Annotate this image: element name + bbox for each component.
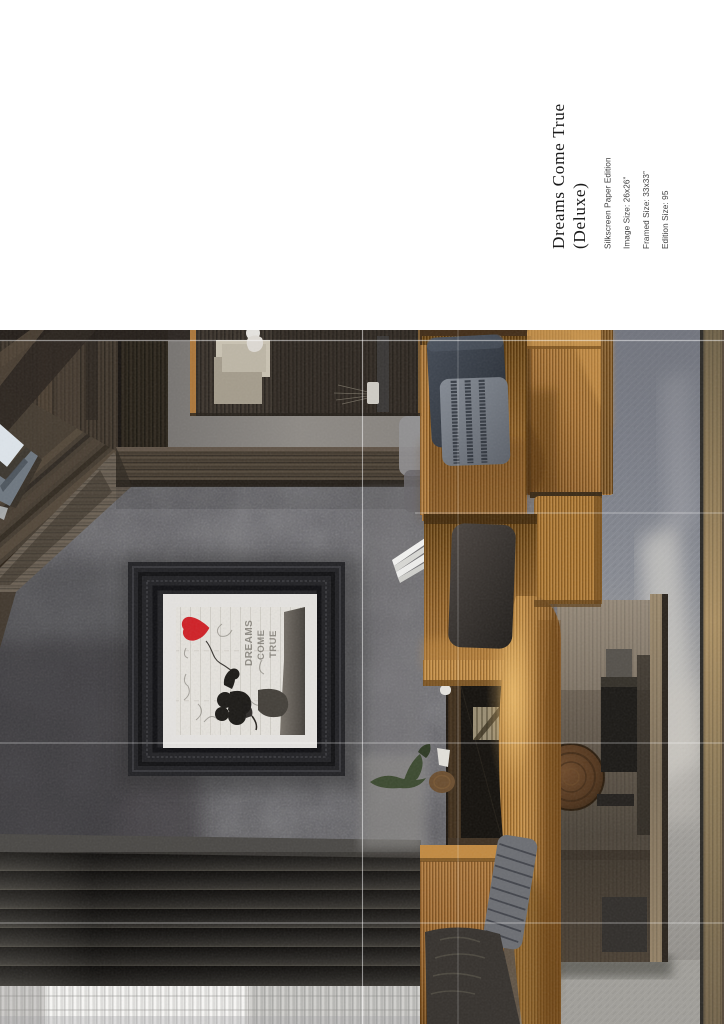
svg-text:Dreams Come True: Dreams Come True xyxy=(549,103,568,249)
svg-text:Framed Size: 33x33”: Framed Size: 33x33” xyxy=(642,171,651,249)
svg-text:Edition Size: 95: Edition Size: 95 xyxy=(661,190,670,249)
svg-text:(Deluxe): (Deluxe) xyxy=(570,182,589,249)
svg-text:Silkscreen Paper Edition: Silkscreen Paper Edition xyxy=(604,157,613,249)
svg-text:Image Size: 26x26”: Image Size: 26x26” xyxy=(623,176,632,249)
